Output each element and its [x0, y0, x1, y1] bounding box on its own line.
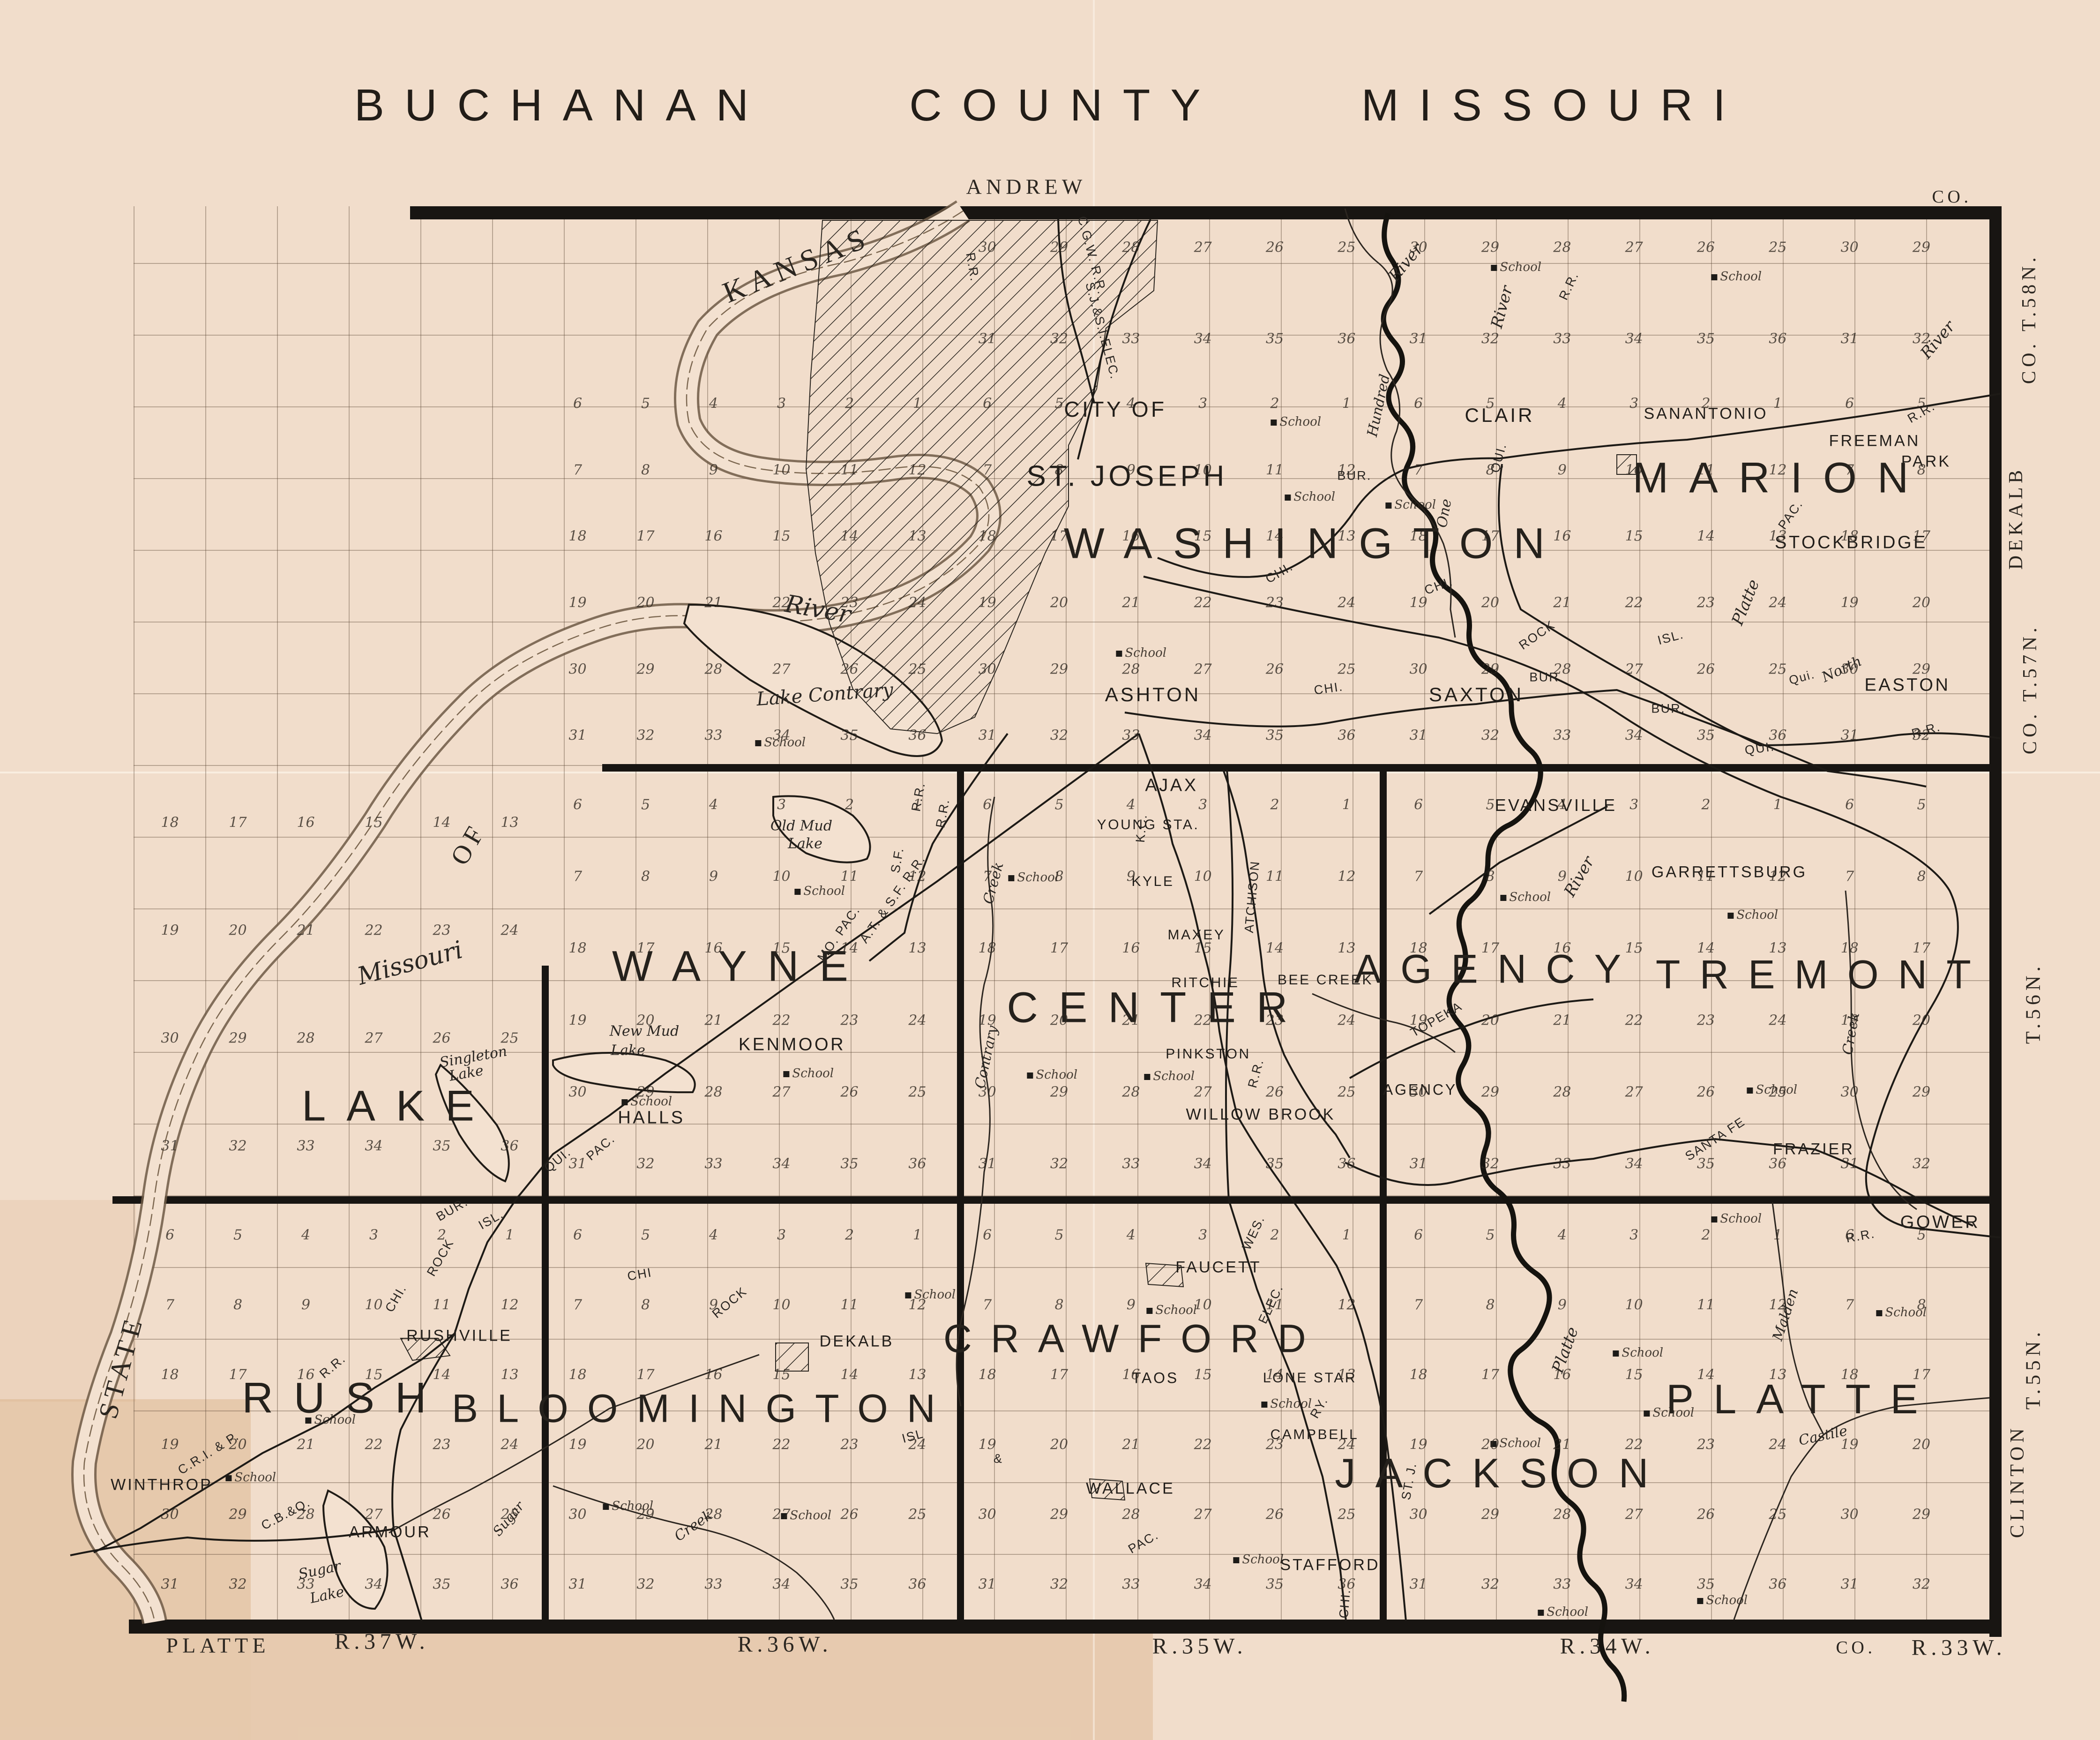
school-marker: School: [1697, 1593, 1748, 1607]
section-number: 9: [709, 1297, 718, 1313]
section-number: 21: [1122, 594, 1140, 611]
town-label: EASTON: [1865, 675, 1951, 696]
section-number: 27: [1625, 1507, 1643, 1523]
section-number: 18: [1841, 940, 1859, 957]
school-marker: School: [1146, 1303, 1197, 1317]
section-number: 5: [1917, 395, 1926, 412]
section-number: 35: [840, 1576, 858, 1593]
section-number: 17: [1050, 528, 1068, 545]
section-number: 18: [161, 815, 179, 831]
section-number: 22: [1625, 1437, 1643, 1453]
water-label: Old Mud: [770, 818, 832, 834]
section-number: 16: [704, 528, 722, 545]
section-number: 8: [1486, 869, 1495, 885]
edge-label: DEKALB: [2005, 466, 2027, 570]
edge-label: CLINTON: [2006, 1425, 2029, 1538]
section-number: 32: [1050, 1156, 1068, 1172]
section-number: 19: [1410, 1437, 1427, 1453]
school-marker: School: [1116, 646, 1166, 660]
section-number: 15: [365, 815, 382, 831]
section-number: 14: [840, 1366, 858, 1383]
section-number: 29: [229, 1507, 247, 1523]
section-number: 28: [297, 1507, 314, 1523]
section-number: 28: [297, 1030, 314, 1047]
town-label: HALLS: [618, 1108, 685, 1128]
section-number: 19: [161, 1437, 179, 1453]
section-number: 28: [704, 1084, 722, 1101]
section-number: 26: [1266, 1507, 1284, 1523]
section-number: 24: [1769, 594, 1786, 611]
town-label: ASHTON: [1105, 683, 1201, 706]
section-number: 13: [1769, 528, 1786, 545]
section-number: 28: [1553, 1507, 1571, 1523]
school-marker: School: [1261, 1397, 1312, 1411]
section-number: 35: [1697, 1156, 1715, 1172]
section-number: 28: [704, 1507, 722, 1523]
section-number: 25: [1338, 1507, 1355, 1523]
section-number: 10: [772, 869, 790, 885]
section-number: 19: [979, 1012, 996, 1028]
chi-saxton-rail: [1125, 690, 1926, 787]
section-number: 32: [1481, 1576, 1499, 1593]
section-number: 10: [1625, 869, 1643, 885]
section-number: 29: [1050, 1084, 1068, 1101]
section-number: 17: [1050, 1366, 1068, 1383]
section-number: 9: [709, 869, 718, 885]
section-number: 32: [1913, 727, 1930, 744]
section-number: 6: [1845, 395, 1854, 412]
section-number: 3: [777, 395, 786, 412]
section-number: 22: [772, 1437, 790, 1453]
section-number: 15: [772, 1366, 790, 1383]
section-number: 6: [165, 1227, 174, 1243]
section-number: 6: [573, 796, 582, 813]
section-number: 33: [1553, 330, 1571, 347]
section-number: 11: [840, 869, 858, 885]
section-number: 35: [840, 1156, 858, 1172]
section-number: 33: [704, 1576, 722, 1593]
section-number: 17: [229, 815, 247, 831]
section-number: 36: [1769, 727, 1786, 744]
section-number: 21: [1553, 1437, 1571, 1453]
section-number: 5: [1054, 395, 1063, 412]
section-number: 8: [1486, 462, 1495, 478]
section-number: 24: [908, 594, 926, 611]
section-number: 13: [908, 528, 926, 545]
township-label: BLOOMINGTON: [452, 1386, 954, 1432]
section-number: 29: [1481, 1507, 1499, 1523]
section-number: 32: [229, 1138, 247, 1155]
section-number: 30: [979, 239, 996, 255]
section-number: 17: [636, 1366, 654, 1383]
section-number: 24: [1769, 1437, 1786, 1453]
town-label: EVANSVILLE: [1495, 795, 1617, 815]
section-number: 32: [1481, 1156, 1499, 1172]
section-number: 27: [1625, 1084, 1643, 1101]
section-number: 4: [709, 796, 718, 813]
section-number: 20: [1481, 1012, 1499, 1028]
town-label: GOWER: [1900, 1213, 1980, 1233]
edge-label: T.55N.: [2021, 1328, 2045, 1410]
edge-label: R.37W.: [335, 1629, 430, 1655]
town-label: AJAX: [1145, 776, 1198, 796]
section-number: 36: [1769, 1576, 1786, 1593]
section-number: 10: [772, 462, 790, 478]
section-number: 30: [1410, 1084, 1427, 1101]
section-number: 31: [1841, 1156, 1859, 1172]
township-label: MARION: [1633, 454, 1929, 503]
school-marker: School: [1233, 1552, 1284, 1567]
section-number: 31: [1410, 727, 1427, 744]
section-number: 11: [1266, 1297, 1284, 1313]
section-number: 30: [161, 1507, 179, 1523]
section-number: 31: [979, 1576, 996, 1593]
section-number: 25: [1769, 1507, 1786, 1523]
section-number: 35: [433, 1138, 450, 1155]
edge-label: CO. T.58N.: [2018, 254, 2040, 384]
section-number: 4: [1127, 1227, 1136, 1243]
section-number: 4: [709, 395, 718, 412]
section-number: 20: [1050, 1437, 1068, 1453]
town-label: PARK: [1901, 453, 1951, 471]
section-number: 8: [1054, 869, 1063, 885]
section-number: 13: [1338, 940, 1355, 957]
section-number: 11: [840, 462, 858, 478]
section-number: 29: [1913, 661, 1930, 677]
section-number: 36: [1338, 727, 1355, 744]
section-number: 24: [501, 1437, 518, 1453]
section-number: 30: [1841, 1507, 1859, 1523]
section-number: 10: [772, 1297, 790, 1313]
section-number: 31: [1841, 1576, 1859, 1593]
section-number: 1: [505, 1227, 514, 1243]
section-number: 29: [1481, 661, 1499, 677]
section-number: 12: [908, 1297, 926, 1313]
section-number: 13: [501, 1366, 518, 1383]
section-number: 26: [1697, 1507, 1715, 1523]
wes-elec-rail: [1226, 770, 1346, 1621]
section-number: 6: [573, 395, 582, 412]
section-number: 10: [1625, 1297, 1643, 1313]
section-number: 19: [979, 594, 996, 611]
section-number: 22: [365, 922, 382, 939]
section-number: 1: [1342, 796, 1351, 813]
section-number: 12: [1769, 462, 1786, 478]
section-number: 27: [1625, 661, 1643, 677]
section-number: 26: [840, 1507, 858, 1523]
section-number: 24: [908, 1437, 926, 1453]
section-number: 7: [983, 462, 992, 478]
section-number: 11: [1266, 869, 1284, 885]
section-number: 20: [229, 1437, 247, 1453]
section-number: 16: [704, 1366, 722, 1383]
section-number: 12: [908, 869, 926, 885]
section-number: 36: [1769, 1156, 1786, 1172]
section-number: 6: [1414, 395, 1423, 412]
section-number: 8: [1917, 1297, 1926, 1313]
section-number: 28: [704, 661, 722, 677]
section-number: 15: [1194, 1366, 1212, 1383]
section-number: 30: [1841, 1084, 1859, 1101]
section-number: 22: [1194, 594, 1212, 611]
section-number: 4: [709, 1227, 718, 1243]
section-number: 7: [1414, 462, 1423, 478]
railroad-label: K.C.: [1133, 813, 1150, 843]
section-number: 33: [704, 1156, 722, 1172]
section-number: 2: [845, 395, 854, 412]
county-plat-map: BUCHANAN COUNTY MISSOURI: [0, 0, 2100, 1740]
section-number: 22: [1194, 1012, 1212, 1028]
section-number: 15: [1194, 528, 1212, 545]
section-number: 27: [365, 1030, 382, 1047]
section-number: 15: [1625, 1366, 1643, 1383]
section-number: 13: [1338, 528, 1355, 545]
section-number: 9: [1127, 1297, 1136, 1313]
section-number: 34: [1194, 727, 1212, 744]
section-number: 16: [1122, 528, 1140, 545]
section-number: 23: [1266, 1437, 1284, 1453]
section-number: 1: [1773, 395, 1782, 412]
section-number: 33: [297, 1138, 314, 1155]
section-number: 23: [1697, 594, 1715, 611]
section-number: 18: [1841, 1366, 1859, 1383]
section-number: 21: [297, 1437, 314, 1453]
section-number: 4: [1127, 796, 1136, 813]
section-number: 30: [1410, 239, 1427, 255]
section-number: 7: [573, 1297, 582, 1313]
section-number: 19: [1841, 1012, 1859, 1028]
section-number: 7: [1845, 462, 1854, 478]
section-number: 21: [704, 594, 722, 611]
section-number: 10: [365, 1297, 382, 1313]
section-number: 7: [1845, 1297, 1854, 1313]
section-number: 4: [301, 1227, 310, 1243]
section-number: 35: [1697, 1576, 1715, 1593]
section-number: 22: [772, 594, 790, 611]
section-number: 5: [233, 1227, 242, 1243]
section-number: 12: [1769, 1297, 1786, 1313]
section-number: 29: [636, 1084, 654, 1101]
section-number: 29: [1913, 1084, 1930, 1101]
section-number: 10: [1194, 869, 1212, 885]
section-number: 14: [1266, 1366, 1284, 1383]
section-number: 10: [1625, 462, 1643, 478]
town-label: WILLOW BROOK: [1186, 1106, 1335, 1124]
town-label: BEE CREEK: [1278, 972, 1373, 988]
section-number: 35: [1266, 727, 1284, 744]
edge-label: CO.: [1836, 1637, 1876, 1658]
section-number: 15: [1625, 940, 1643, 957]
school-marker: School: [1385, 498, 1436, 512]
section-number: 12: [1769, 869, 1786, 885]
town-label: PINKSTON: [1166, 1046, 1251, 1062]
section-number: 20: [636, 594, 654, 611]
section-number: 20: [1481, 594, 1499, 611]
school-marker: School: [1285, 490, 1335, 504]
section-number: 34: [1625, 1576, 1643, 1593]
section-number: 26: [1697, 661, 1715, 677]
section-number: 2: [1270, 395, 1279, 412]
section-number: 16: [704, 940, 722, 957]
section-number: 13: [908, 1366, 926, 1383]
section-number: 26: [433, 1507, 450, 1523]
section-number: 8: [1054, 462, 1063, 478]
section-number: 23: [840, 1437, 858, 1453]
section-number: 19: [1410, 1012, 1427, 1028]
section-number: 1: [913, 395, 922, 412]
section-number: 30: [568, 1084, 586, 1101]
section-number: 17: [1481, 528, 1499, 545]
section-number: 29: [1481, 1084, 1499, 1101]
section-number: 33: [1553, 1156, 1571, 1172]
section-number: 35: [1266, 1576, 1284, 1593]
section-number: 5: [1486, 796, 1495, 813]
section-number: 2: [1701, 796, 1710, 813]
sf-city-rail: [869, 734, 1008, 961]
section-number: 16: [297, 815, 314, 831]
section-number: 21: [704, 1437, 722, 1453]
section-number: 6: [1414, 796, 1423, 813]
section-number: 2: [1701, 1227, 1710, 1243]
edge-label: CO.: [1932, 187, 1972, 207]
town-label: ARMOUR: [349, 1523, 431, 1542]
section-number: 18: [1841, 528, 1859, 545]
section-number: 15: [365, 1366, 382, 1383]
section-number: 25: [1769, 661, 1786, 677]
section-number: 7: [983, 869, 992, 885]
section-number: 18: [568, 940, 586, 957]
section-number: 10: [1194, 1297, 1212, 1313]
railroad-label: &: [994, 1452, 1003, 1466]
section-number: 32: [229, 1576, 247, 1593]
railroad-label: BUR.: [1651, 702, 1685, 716]
section-number: 31: [161, 1576, 179, 1593]
section-number: 17: [229, 1366, 247, 1383]
section-number: 29: [1050, 661, 1068, 677]
section-number: 34: [1194, 1576, 1212, 1593]
section-number: 24: [501, 922, 518, 939]
section-number: 6: [983, 1227, 992, 1243]
section-number: 24: [1769, 1012, 1786, 1028]
section-number: 18: [568, 1366, 586, 1383]
section-number: 34: [1625, 727, 1643, 744]
section-number: 2: [1270, 796, 1279, 813]
section-number: 5: [641, 395, 650, 412]
section-number: 34: [1625, 1156, 1643, 1172]
section-number: 23: [840, 1012, 858, 1028]
section-number: 2: [845, 1227, 854, 1243]
section-number: 18: [979, 1366, 996, 1383]
section-number: 8: [641, 869, 650, 885]
section-number: 2: [1270, 1227, 1279, 1243]
section-number: 31: [568, 1576, 586, 1593]
section-number: 27: [365, 1507, 382, 1523]
section-number: 31: [1410, 330, 1427, 347]
section-number: 17: [1481, 1366, 1499, 1383]
school-marker: School: [1613, 1346, 1663, 1360]
section-number: 27: [772, 1507, 790, 1523]
water-label: Lake: [788, 836, 822, 852]
section-number: 12: [1338, 1297, 1355, 1313]
section-number: 1: [1342, 395, 1351, 412]
edge-label: R.33W.: [1912, 1635, 2007, 1661]
section-number: 33: [1122, 1576, 1140, 1593]
section-number: 14: [840, 940, 858, 957]
section-number: 5: [1486, 1227, 1495, 1243]
section-number: 21: [1553, 1012, 1571, 1028]
section-number: 31: [568, 1156, 586, 1172]
section-number: 6: [983, 395, 992, 412]
section-number: 35: [1697, 727, 1715, 744]
section-number: 33: [1122, 1156, 1140, 1172]
section-number: 11: [1266, 462, 1284, 478]
town-label: DEKALB: [820, 1333, 894, 1351]
section-number: 24: [908, 1012, 926, 1028]
section-number: 14: [433, 1366, 450, 1383]
section-number: 16: [1122, 1366, 1140, 1383]
section-number: 29: [1913, 239, 1930, 255]
section-number: 11: [1697, 869, 1715, 885]
section-number: 9: [301, 1297, 310, 1313]
railroad-label: CHI.: [1337, 1588, 1353, 1619]
section-number: 19: [1841, 1437, 1859, 1453]
town-label: WINTHROP: [111, 1476, 213, 1494]
section-number: 32: [1481, 330, 1499, 347]
section-number: 25: [908, 661, 926, 677]
section-number: 4: [1558, 796, 1567, 813]
section-number: 14: [1697, 1366, 1715, 1383]
section-number: 19: [1410, 594, 1427, 611]
school-marker: School: [783, 1066, 834, 1080]
section-number: 8: [1917, 869, 1926, 885]
town-label: RUSHVILLE: [406, 1327, 512, 1345]
section-number: 32: [1913, 1576, 1930, 1593]
section-number: 31: [1841, 727, 1859, 744]
section-number: 36: [1338, 1156, 1355, 1172]
school-marker: School: [1538, 1605, 1588, 1619]
section-number: 1: [1342, 1227, 1351, 1243]
section-number: 8: [1054, 1297, 1063, 1313]
section-number: 31: [1841, 330, 1859, 347]
section-number: 13: [1769, 940, 1786, 957]
section-number: 28: [1553, 1084, 1571, 1101]
section-number: 8: [641, 462, 650, 478]
topeka-rail: [1350, 999, 1593, 1078]
section-number: 34: [1194, 330, 1212, 347]
section-number: 33: [1553, 1576, 1571, 1593]
section-number: 18: [161, 1366, 179, 1383]
section-number: 23: [1697, 1437, 1715, 1453]
section-number: 31: [1410, 1156, 1427, 1172]
section-number: 27: [1194, 239, 1212, 255]
edge-label: R.35W.: [1152, 1634, 1248, 1659]
township-label: TREMONT: [1656, 952, 1990, 998]
section-number: 28: [1122, 661, 1140, 677]
section-number: 17: [636, 940, 654, 957]
section-number: 31: [979, 1156, 996, 1172]
section-number: 1: [1773, 796, 1782, 813]
section-number: 33: [1122, 330, 1140, 347]
section-number: 26: [1266, 1084, 1284, 1101]
section-number: 5: [641, 1227, 650, 1243]
section-number: 22: [1625, 594, 1643, 611]
section-number: 22: [1625, 1012, 1643, 1028]
section-number: 23: [1697, 1012, 1715, 1028]
section-number: 12: [908, 462, 926, 478]
section-number: 7: [573, 869, 582, 885]
section-number: 18: [1410, 940, 1427, 957]
section-number: 17: [636, 528, 654, 545]
